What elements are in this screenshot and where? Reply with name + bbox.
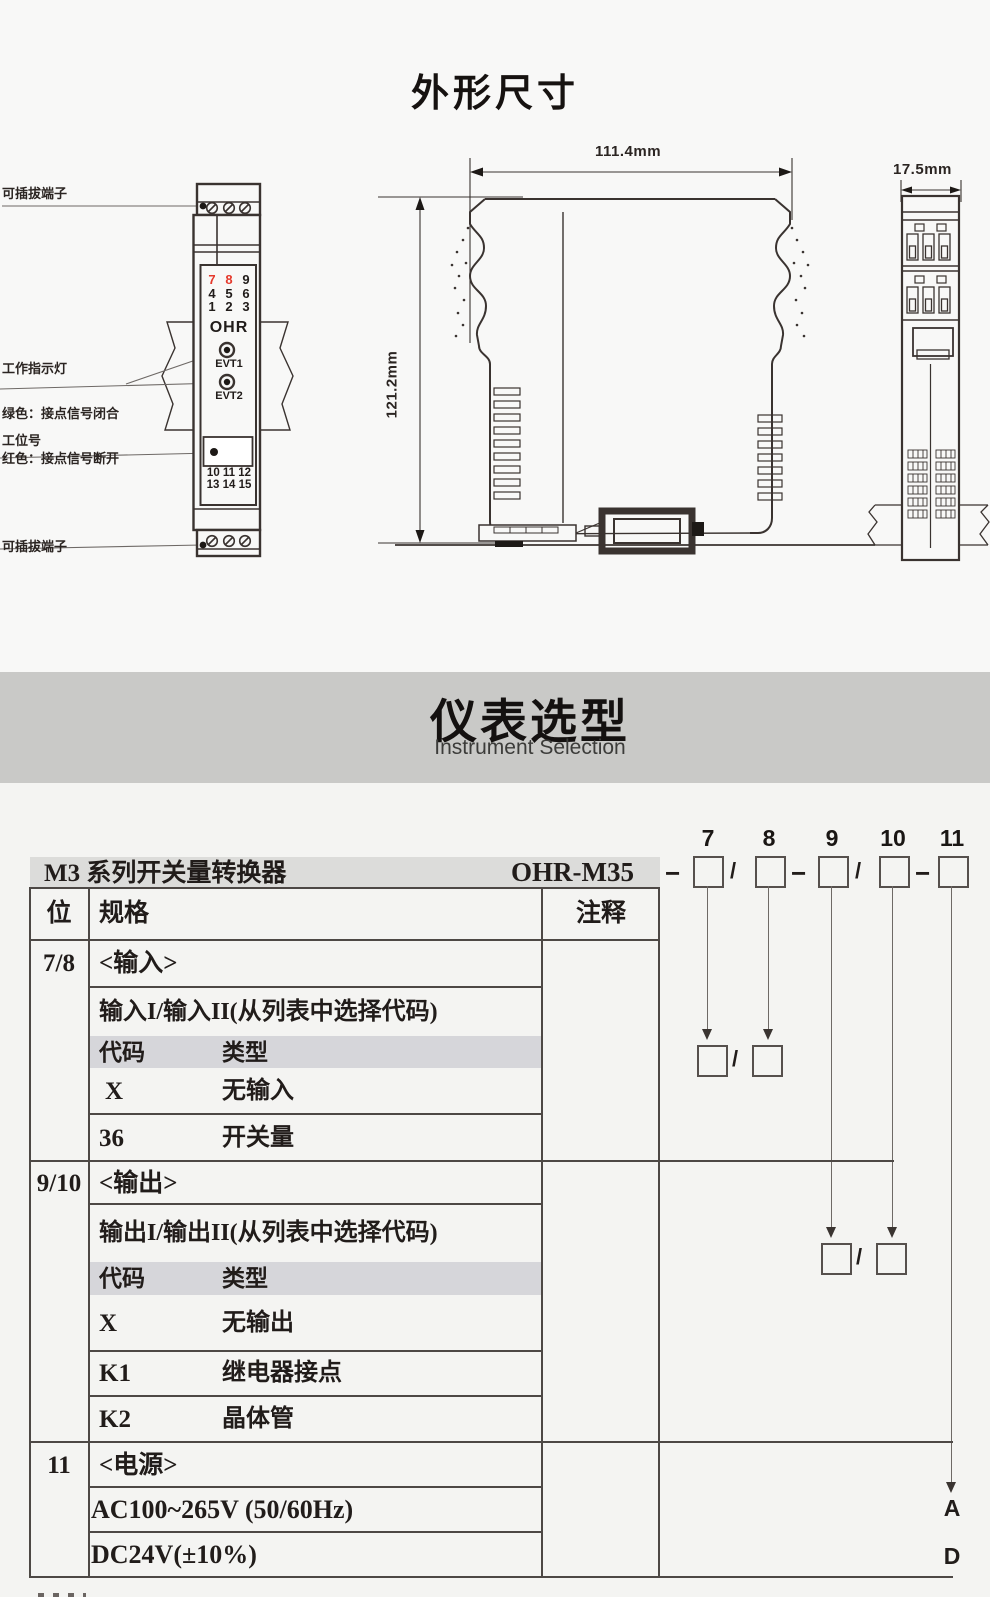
connector-line-9 <box>831 886 832 1228</box>
group-name-output: <输出> <box>99 1171 178 1196</box>
code-box-8 <box>755 856 786 888</box>
table-border <box>88 1350 543 1352</box>
code-box-11 <box>938 856 969 888</box>
terminal-digits-bottom1: 10 11 12 <box>201 467 257 479</box>
clipped-footnote-marks <box>38 1593 86 1597</box>
table-border <box>29 1160 894 1162</box>
input-code-box-1 <box>697 1045 728 1077</box>
label-indicator: 工作指示灯 绿色：接点信号闭合 红色：接点信号断开 <box>2 331 119 496</box>
table-border <box>88 1395 543 1397</box>
code-header-band-output <box>89 1262 542 1295</box>
label-bottom-terminal: 可插拔端子 <box>2 539 67 554</box>
code-position-9: 9 <box>817 827 847 850</box>
pair-slash: / <box>856 1246 862 1268</box>
option-type: 开关量 <box>222 1126 294 1150</box>
label-indicator-line3: 红色：接点信号断开 <box>2 451 119 466</box>
option-type: 继电器接点 <box>222 1361 342 1385</box>
selection-banner-subtitle: Instrument Selection <box>70 736 990 760</box>
group-subtitle-input: 输入I/输入II(从列表中选择代码) <box>99 1000 438 1024</box>
table-border <box>29 1441 953 1443</box>
code-position-11: 11 <box>937 827 967 850</box>
label-station-no: 工位号 <box>2 433 41 448</box>
power-option-dc: DC24V(±10%) <box>91 1542 257 1568</box>
option-code: K1 <box>99 1361 131 1386</box>
side-height-dim: 121.2mm <box>384 345 401 425</box>
code-position-10: 10 <box>878 827 908 850</box>
series-title: M3 系列开关量转换器 <box>44 861 286 886</box>
option-type: 无输出 <box>222 1311 294 1335</box>
datasheet-page: 外形尺寸 <box>0 0 990 1597</box>
terminal-digit: 1 <box>206 299 218 314</box>
label-top-terminal: 可插拔端子 <box>2 186 67 201</box>
connector-line-8 <box>768 886 769 1030</box>
power-code-ac: A <box>938 1497 966 1520</box>
group-pos-78: 7/8 <box>29 951 89 976</box>
terminal-digit: 9 <box>240 272 252 287</box>
group-pos-910: 9/10 <box>29 1171 89 1196</box>
type-col-header: 类型 <box>222 1267 268 1290</box>
col-header-spec: 规格 <box>99 901 149 926</box>
led2-label: EVT2 <box>201 390 257 402</box>
connector-line-7 <box>707 886 708 1030</box>
type-col-header: 类型 <box>222 1041 268 1064</box>
terminal-digit: 2 <box>223 299 235 314</box>
power-code-dc: D <box>938 1545 966 1568</box>
code-box-9 <box>818 856 849 888</box>
connector-line-10 <box>892 886 893 1228</box>
table-border <box>658 888 660 1578</box>
label-indicator-line1: 工作指示灯 <box>2 361 119 376</box>
arrow-down-icon <box>763 1029 773 1040</box>
code-separator: / <box>855 860 861 882</box>
option-code: 36 <box>99 1126 124 1151</box>
arrow-down-icon <box>946 1482 956 1493</box>
code-separator: − <box>915 860 930 886</box>
option-type: 无输入 <box>222 1079 294 1103</box>
code-separator: / <box>730 860 736 882</box>
table-border <box>29 1576 953 1578</box>
code-col-header: 代码 <box>99 1267 145 1290</box>
terminal-digits-row1: 7 8 9 <box>201 272 257 287</box>
code-separator: − <box>665 860 680 886</box>
group-subtitle-output: 输出I/输出II(从列表中选择代码) <box>99 1221 438 1245</box>
code-box-10 <box>879 856 910 888</box>
terminal-digits-row3: 1 2 3 <box>201 299 257 314</box>
arrow-down-icon <box>887 1227 897 1238</box>
brand-logo: OHR <box>201 319 257 337</box>
arrow-down-icon <box>826 1227 836 1238</box>
table-border <box>29 939 660 941</box>
group-name-input: <输入> <box>99 951 178 976</box>
model-code: OHR-M35 <box>511 859 634 886</box>
code-header-band-input <box>89 1036 542 1068</box>
pair-slash: / <box>732 1048 738 1070</box>
output-code-box-2 <box>876 1243 907 1275</box>
dimensions-title: 外形尺寸 <box>0 62 990 117</box>
power-option-ac: AC100~265V (50/60Hz) <box>91 1497 353 1523</box>
table-border <box>88 1531 543 1533</box>
col-header-note: 注释 <box>542 901 660 926</box>
code-box-7 <box>693 856 724 888</box>
end-width-dim: 17.5mm <box>893 161 952 178</box>
table-border <box>88 1203 543 1205</box>
side-width-dim: 111.4mm <box>595 143 661 160</box>
label-indicator-line2: 绿色：接点信号闭合 <box>2 406 119 421</box>
dimensions-section: 外形尺寸 <box>0 0 990 672</box>
table-border <box>29 887 660 889</box>
selection-banner: 仪表选型 Instrument Selection <box>0 672 990 783</box>
table-border <box>541 888 543 1578</box>
group-name-power: <电源> <box>99 1453 178 1478</box>
col-header-pos: 位 <box>29 901 89 926</box>
input-code-box-2 <box>752 1045 783 1077</box>
connector-line-11 <box>951 886 952 1483</box>
option-code: X <box>99 1311 117 1336</box>
side-view-drawing-svg <box>360 130 890 560</box>
code-position-8: 8 <box>754 827 784 850</box>
table-border <box>88 986 543 988</box>
output-code-box-1 <box>821 1243 852 1275</box>
table-border <box>88 1113 543 1115</box>
terminal-digits-bottom2: 13 14 15 <box>201 479 257 491</box>
code-position-7: 7 <box>693 827 723 850</box>
code-col-header: 代码 <box>99 1041 145 1064</box>
terminal-digit: 7 <box>206 272 218 287</box>
option-code: X <box>105 1079 123 1104</box>
option-type: 晶体管 <box>222 1407 294 1431</box>
table-border <box>88 1486 543 1488</box>
terminal-digit: 8 <box>223 272 235 287</box>
arrow-down-icon <box>702 1029 712 1040</box>
option-code: K2 <box>99 1407 131 1432</box>
led1-label: EVT1 <box>201 358 257 370</box>
code-separator: − <box>791 860 806 886</box>
group-pos-11: 11 <box>29 1453 89 1478</box>
terminal-digit: 3 <box>240 299 252 314</box>
end-view-drawing-svg <box>855 150 990 570</box>
